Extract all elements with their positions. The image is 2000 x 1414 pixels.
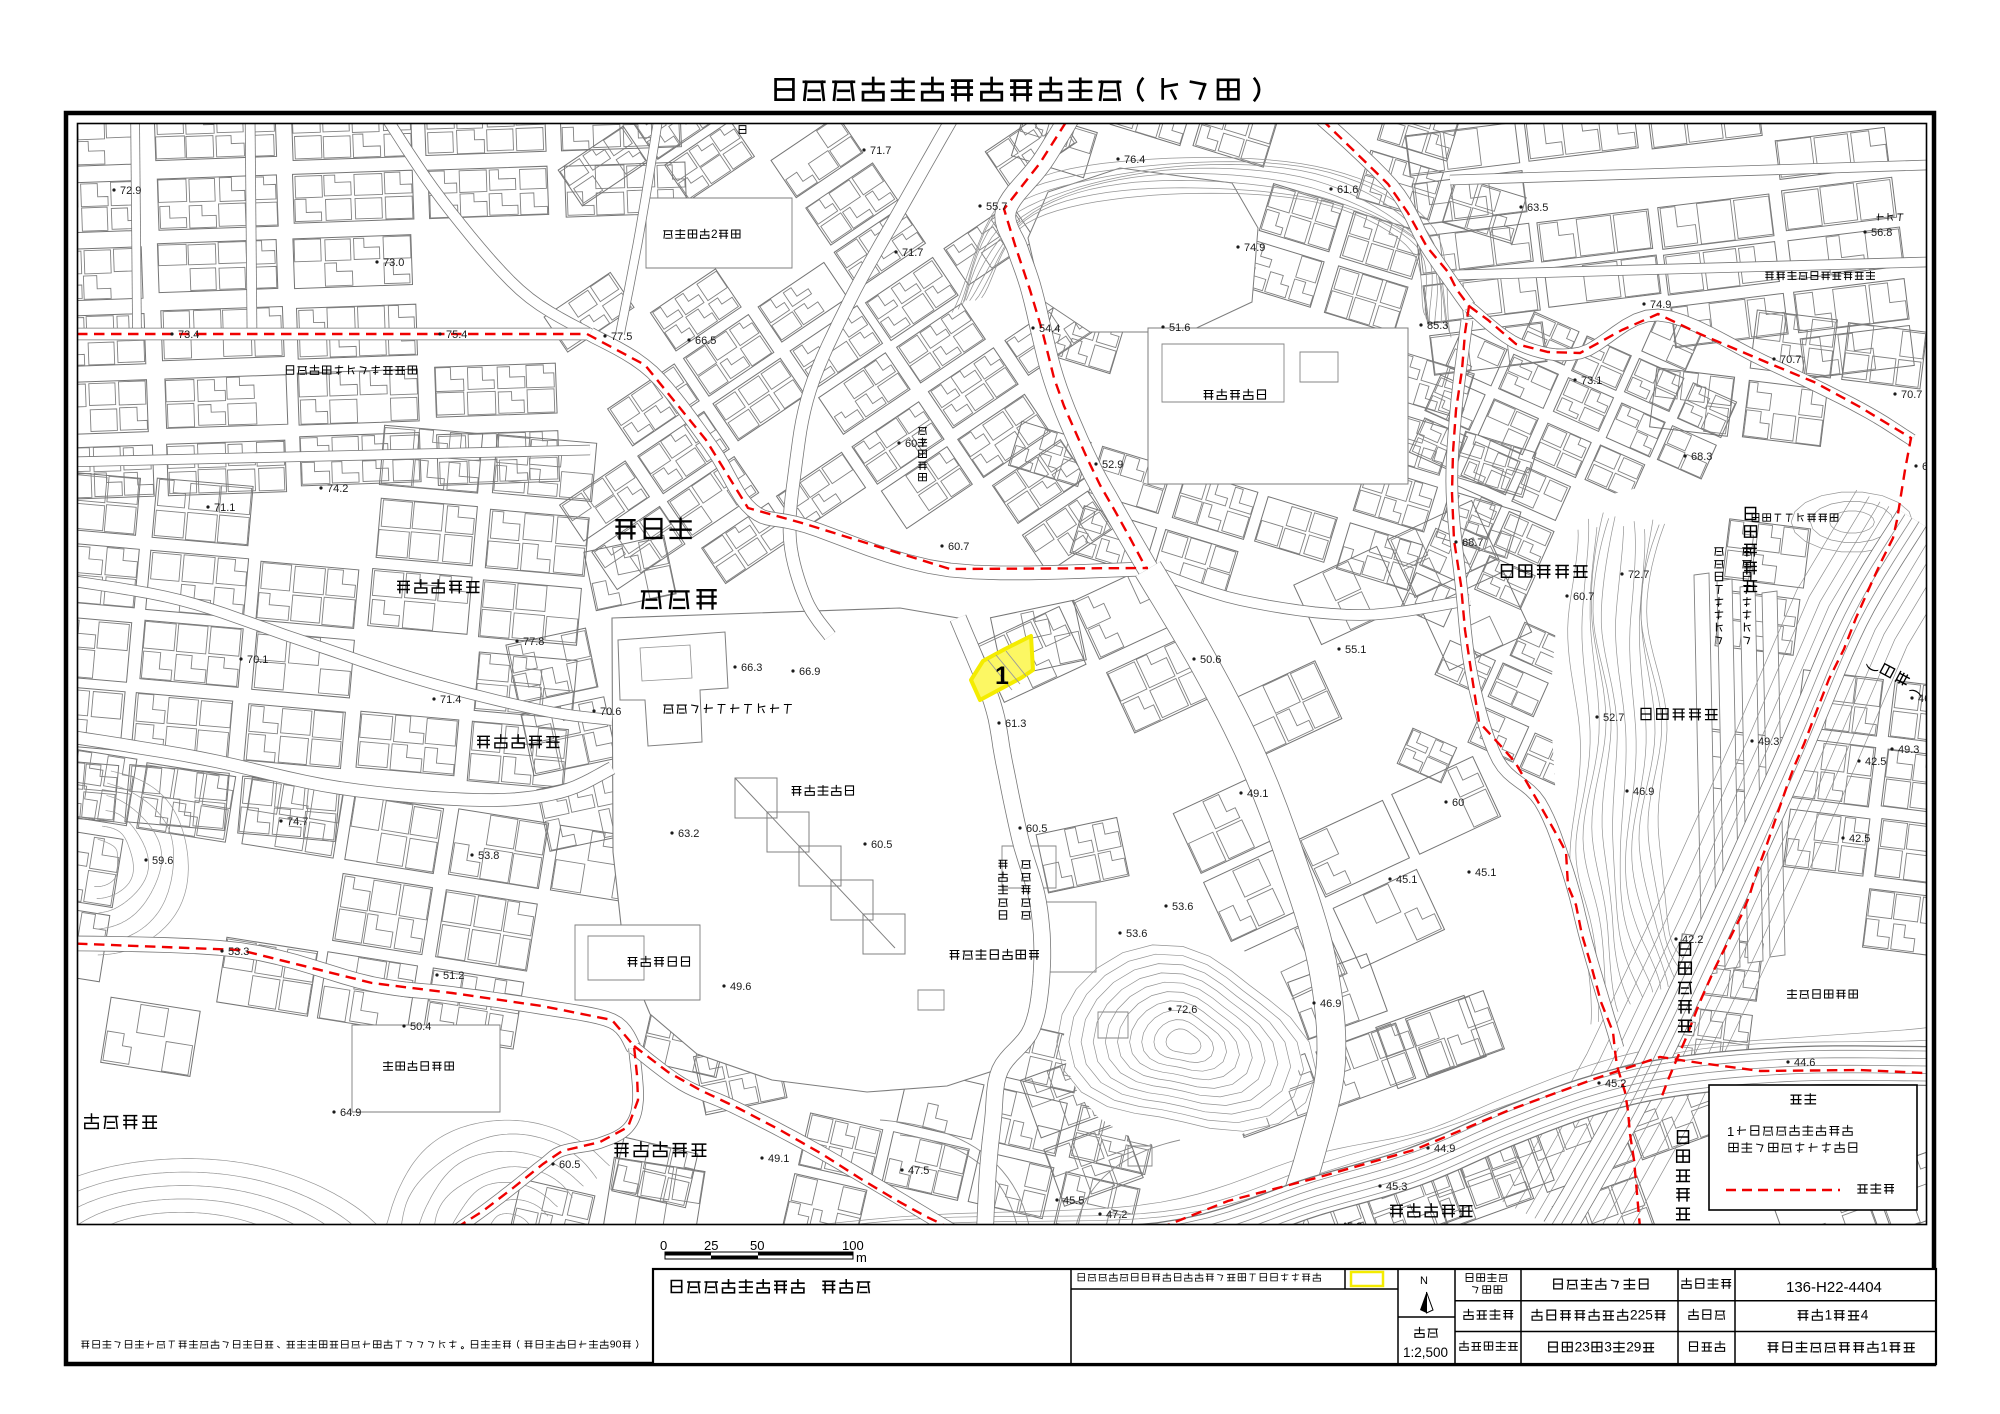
svg-text:85.3: 85.3	[1427, 320, 1448, 332]
svg-text:60.7: 60.7	[1573, 591, 1594, 603]
svg-text:70.6: 70.6	[600, 706, 621, 718]
svg-text:49.1: 49.1	[1247, 788, 1268, 800]
svg-text:1: 1	[1825, 1308, 1833, 1323]
svg-text:75.4: 75.4	[446, 329, 467, 341]
svg-text:72.6: 72.6	[1176, 1004, 1197, 1016]
svg-text:4: 4	[1861, 1308, 1869, 1323]
svg-text:90: 90	[610, 1340, 622, 1351]
svg-text:60.5: 60.5	[559, 1159, 580, 1171]
svg-text:52.7: 52.7	[1603, 712, 1624, 724]
svg-text:71.4: 71.4	[440, 694, 461, 706]
svg-text:71.7: 71.7	[870, 145, 891, 157]
svg-text:60: 60	[1452, 797, 1464, 809]
svg-text:44.9: 44.9	[1434, 1143, 1455, 1155]
svg-text:71.7: 71.7	[902, 247, 923, 259]
svg-text:53.8: 53.8	[478, 850, 499, 862]
svg-text:60.7: 60.7	[905, 438, 926, 450]
svg-text:63.2: 63.2	[678, 828, 699, 840]
svg-text:61.3: 61.3	[1005, 718, 1026, 730]
svg-text:68.3: 68.3	[1691, 451, 1712, 463]
svg-text:3: 3	[1604, 1340, 1612, 1355]
svg-text:70.1: 70.1	[247, 654, 268, 666]
svg-text:53.6: 53.6	[1172, 901, 1193, 913]
svg-text:45.5: 45.5	[1063, 1195, 1084, 1207]
svg-text:74.9: 74.9	[1244, 242, 1265, 254]
svg-text:51.6: 51.6	[1169, 322, 1190, 334]
svg-text:25: 25	[704, 1238, 718, 1253]
svg-text:N: N	[1420, 1275, 1428, 1287]
svg-text:66.3: 66.3	[741, 662, 762, 674]
svg-text:50.4: 50.4	[410, 1021, 431, 1033]
svg-text:72.9: 72.9	[120, 185, 141, 197]
svg-text:50.6: 50.6	[1200, 654, 1221, 666]
svg-text:46.9: 46.9	[1633, 786, 1654, 798]
svg-text:76.4: 76.4	[1124, 154, 1145, 166]
svg-text:55.7: 55.7	[986, 201, 1007, 213]
svg-text:60.7: 60.7	[948, 541, 969, 553]
svg-text:74.7: 74.7	[287, 816, 308, 828]
svg-text:70.7: 70.7	[1780, 354, 1801, 366]
svg-text:49.1: 49.1	[768, 1153, 789, 1165]
svg-text:59.6: 59.6	[152, 855, 173, 867]
svg-text:55.1: 55.1	[1345, 644, 1366, 656]
svg-text:73.1: 73.1	[1581, 375, 1602, 387]
svg-text:47.5: 47.5	[908, 1165, 929, 1177]
svg-text:50: 50	[750, 1238, 764, 1253]
svg-text:51.2: 51.2	[443, 970, 464, 982]
svg-text:45.3: 45.3	[1386, 1181, 1407, 1193]
svg-text:23: 23	[1575, 1340, 1591, 1355]
svg-text:53.3: 53.3	[228, 946, 249, 958]
svg-text:70.7: 70.7	[1901, 389, 1922, 401]
svg-text:66.5: 66.5	[695, 335, 716, 347]
svg-text:0: 0	[660, 1238, 667, 1253]
svg-text:49.3: 49.3	[1758, 736, 1779, 748]
svg-text:44.6: 44.6	[1794, 1057, 1815, 1069]
svg-text:45.1: 45.1	[1396, 874, 1417, 886]
svg-text:72.7: 72.7	[1628, 569, 1649, 581]
svg-text:74.2: 74.2	[327, 483, 348, 495]
svg-text:225: 225	[1630, 1308, 1653, 1323]
svg-text:136-H22-4404: 136-H22-4404	[1786, 1279, 1882, 1296]
svg-text:53.6: 53.6	[1126, 928, 1147, 940]
svg-text:63.5: 63.5	[1527, 202, 1548, 214]
svg-text:68.7: 68.7	[1462, 537, 1483, 549]
svg-text:74.9: 74.9	[1650, 299, 1671, 311]
svg-text:46.9: 46.9	[1320, 998, 1341, 1010]
svg-text:47.2: 47.2	[1106, 1209, 1127, 1221]
svg-text:2: 2	[711, 227, 718, 241]
svg-text:49.6: 49.6	[730, 981, 751, 993]
svg-text:71.1: 71.1	[214, 502, 235, 514]
svg-text:66.9: 66.9	[799, 666, 820, 678]
svg-text:64.9: 64.9	[340, 1107, 361, 1119]
svg-text:42.2: 42.2	[1682, 934, 1703, 946]
svg-text:42.5: 42.5	[1849, 833, 1870, 845]
svg-text:45.2: 45.2	[1605, 1078, 1626, 1090]
svg-text:60.5: 60.5	[871, 839, 892, 851]
svg-text:1: 1	[1880, 1340, 1888, 1355]
svg-text:77.5: 77.5	[611, 331, 632, 343]
svg-text:1: 1	[995, 662, 1009, 690]
svg-text:42.5: 42.5	[1865, 756, 1886, 768]
svg-text:60.5: 60.5	[1026, 823, 1047, 835]
svg-text:1: 1	[1727, 1124, 1734, 1139]
svg-text:45.1: 45.1	[1475, 867, 1496, 879]
svg-text:56.8: 56.8	[1871, 227, 1892, 239]
svg-text:1:2,500: 1:2,500	[1403, 1345, 1448, 1360]
svg-text:29: 29	[1626, 1340, 1641, 1355]
svg-text:m: m	[856, 1250, 867, 1265]
svg-text:52.9: 52.9	[1102, 459, 1123, 471]
svg-text:61.6: 61.6	[1337, 184, 1358, 196]
svg-text:77.8: 77.8	[523, 636, 544, 648]
svg-text:73.4: 73.4	[178, 329, 199, 341]
svg-text:49.3: 49.3	[1898, 744, 1919, 756]
svg-text:54.4: 54.4	[1039, 323, 1060, 335]
svg-text:73.0: 73.0	[383, 257, 404, 269]
